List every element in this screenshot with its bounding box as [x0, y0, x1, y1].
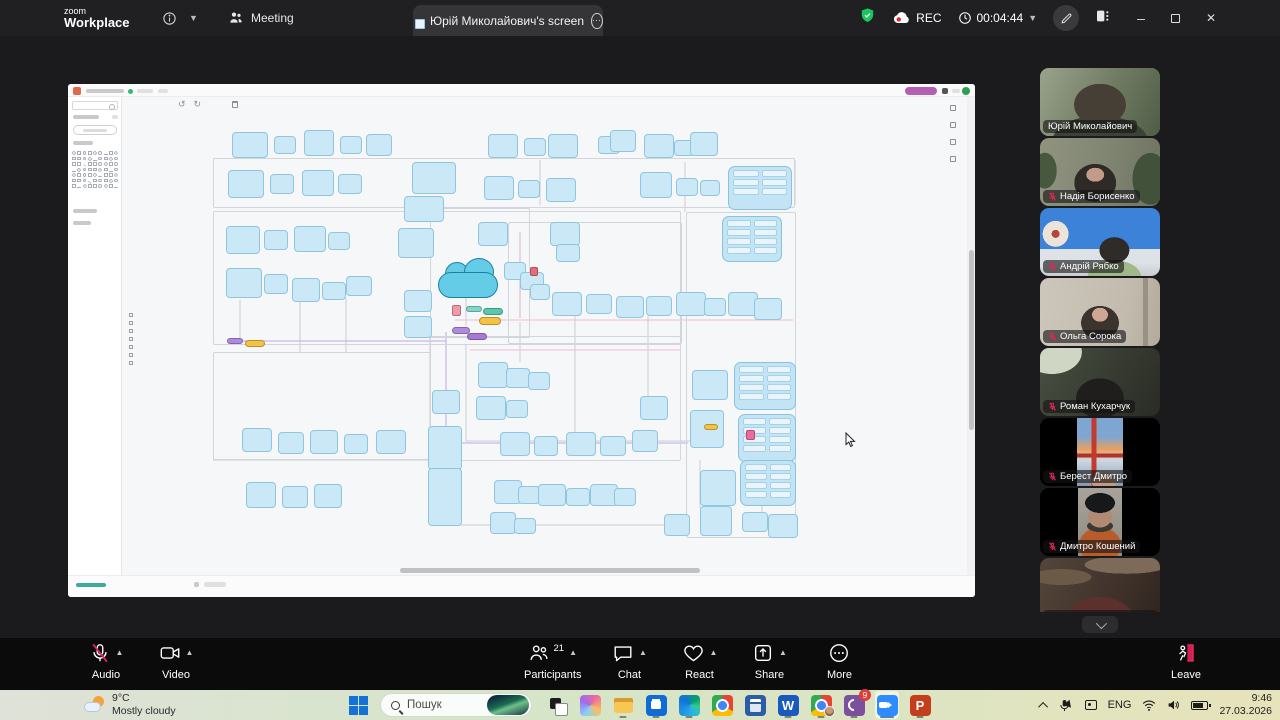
layout-view-button[interactable]	[1095, 8, 1111, 29]
diagram-node[interactable]	[478, 362, 508, 388]
drawio-logo	[73, 87, 81, 95]
react-button[interactable]: ▲React	[677, 642, 721, 681]
drawio-footer-link[interactable]	[76, 583, 106, 587]
taskbar-time: 9:46	[1219, 692, 1272, 705]
diagram-node[interactable]	[412, 162, 456, 194]
weather-desc: Mostly cloudy	[112, 705, 176, 718]
close-button[interactable]: ✕	[1206, 11, 1216, 25]
diagram-node[interactable]	[692, 370, 728, 400]
saved-status-dot	[128, 89, 133, 94]
diagram-accent-shape[interactable]	[530, 267, 538, 276]
profile-avatar	[824, 706, 835, 717]
diagram-node[interactable]	[556, 244, 580, 262]
diagram-node[interactable]	[304, 130, 334, 156]
diagram-node[interactable]	[566, 488, 590, 506]
participant-name-label: Volodymyr Tolmachov	[1043, 610, 1157, 612]
diagram-node[interactable]	[600, 436, 626, 456]
drawio-scratchpad[interactable]	[73, 125, 117, 135]
diagram-node[interactable]	[274, 136, 296, 154]
diagram-node[interactable]	[530, 284, 550, 300]
diagram-node[interactable]	[614, 488, 636, 506]
windows-taskbar: 9°C Mostly cloudy Пошук W9P ENG	[0, 690, 1280, 720]
chevron-down-icon[interactable]: ▼	[182, 6, 206, 30]
muted-mic-icon	[1048, 262, 1057, 271]
diagram-node[interactable]	[500, 432, 530, 456]
diagram-node[interactable]	[228, 170, 264, 198]
mic-in-use-icon[interactable]	[1059, 698, 1074, 712]
diagram-node[interactable]	[646, 296, 672, 316]
taskbar-app-task-view[interactable]	[545, 691, 569, 719]
diagram-node[interactable]	[270, 174, 294, 194]
diagram-node[interactable]	[398, 228, 434, 258]
tab-shared-screen-title: Юрій Миколайович's screen	[430, 14, 584, 28]
weather-temp: 9°C	[112, 692, 176, 705]
diagram-node[interactable]	[518, 180, 540, 198]
zoom-workplace-logo: zoom Workplace	[64, 7, 130, 29]
diagram-node[interactable]	[226, 226, 260, 254]
diagram-node[interactable]	[478, 222, 508, 246]
diagram-node[interactable]	[506, 368, 530, 388]
restore-button[interactable]	[1171, 14, 1180, 23]
video-options-caret[interactable]: ▲	[186, 648, 194, 657]
diagram-node[interactable]	[302, 170, 334, 196]
diagram-node[interactable]	[264, 230, 288, 250]
participant-name-label: Роман Кухарчук	[1043, 400, 1135, 413]
diagram-node[interactable]	[476, 396, 506, 420]
diagram-node[interactable]	[328, 232, 350, 250]
taskbar-app-copilot[interactable]	[578, 691, 602, 719]
diagram-accent-shape[interactable]	[704, 424, 718, 430]
diagram-node[interactable]	[528, 372, 550, 390]
annotate-button[interactable]	[1053, 5, 1079, 31]
participant-name-label: Надія Борисенко	[1043, 190, 1140, 203]
diagram-node[interactable]	[548, 134, 578, 158]
diagram-node[interactable]	[518, 486, 540, 504]
microsoft-store-icon	[646, 695, 667, 716]
diagram-node[interactable]	[586, 294, 612, 314]
diagram-node[interactable]	[506, 400, 528, 418]
participant-name-label: Берест Дмитро	[1043, 470, 1132, 483]
diagram-node[interactable]	[246, 482, 276, 508]
chrome-profile-icon	[811, 695, 832, 716]
drawio-canvas[interactable]: ↺↻	[122, 97, 975, 575]
notification-badge: 9	[859, 689, 871, 701]
taskbar-app-microsoft-store[interactable]	[644, 691, 668, 719]
diagram-accent-shape[interactable]	[746, 430, 755, 440]
diagram-node[interactable]	[610, 130, 636, 152]
participants-button[interactable]: 21▲Participants	[524, 642, 581, 681]
info-icon[interactable]	[158, 6, 182, 30]
diagram-accent-shape[interactable]	[452, 305, 461, 316]
chat-button[interactable]: ▲Chat	[607, 642, 651, 681]
diagram-node[interactable]	[432, 390, 460, 414]
audio-button[interactable]: ▲Audio	[84, 642, 128, 681]
diagram-container-node[interactable]	[734, 362, 796, 410]
edge-icon	[679, 695, 700, 716]
leave-button[interactable]: Leave	[1164, 642, 1208, 681]
participant-name-label: Дмитро Кошений	[1043, 540, 1140, 553]
clock-icon	[958, 11, 972, 25]
diagram-node[interactable]	[742, 512, 768, 532]
recording-indicator[interactable]: REC	[892, 11, 941, 25]
muted-mic-icon	[1048, 472, 1057, 481]
taskbar-app-chrome[interactable]	[710, 691, 734, 719]
drawio-header-bar	[68, 84, 975, 97]
diagram-node[interactable]	[754, 298, 782, 320]
diagram-node[interactable]	[664, 514, 690, 536]
diagram-node[interactable]	[340, 136, 362, 154]
participant-tile[interactable]: Юрій Миколайович	[1040, 68, 1160, 136]
diagram-node[interactable]	[322, 282, 346, 300]
share-button[interactable]: ▲Share	[747, 642, 791, 681]
diagram-container-node[interactable]	[740, 460, 796, 506]
taskbar-search[interactable]: Пошук	[380, 693, 532, 717]
diagram-node[interactable]	[294, 226, 326, 252]
start-button[interactable]	[348, 695, 369, 716]
zoom-meeting-window: zoom Workplace ▼ Meeting Юрій Миколайови…	[0, 0, 1280, 720]
diagram-accent-shape[interactable]	[227, 338, 243, 344]
participant-name-label: Юрій Миколайович	[1043, 120, 1137, 133]
participants-video-rail: Юрій МиколайовичНадія БорисенкоАндрій Ря…	[1040, 68, 1160, 612]
tab-meeting-label: Meeting	[251, 11, 294, 25]
meeting-timer[interactable]: 00:04:44 ▼	[958, 11, 1038, 25]
taskbar-app-file-explorer[interactable]	[611, 691, 635, 719]
diagram-node[interactable]	[632, 430, 658, 452]
canvas-horizontal-scrollbar-thumb[interactable]	[400, 568, 700, 573]
zoom-icon	[877, 695, 898, 716]
muted-mic-icon	[1048, 332, 1057, 341]
muted-mic-icon	[1048, 542, 1057, 551]
participant-tile[interactable]: Ольга Сорока	[1040, 278, 1160, 346]
video-button[interactable]: ▲Video	[154, 642, 198, 681]
shared-screen-drawio-window: ↺↻	[68, 84, 975, 597]
copilot-icon	[580, 695, 601, 716]
taskbar-app-chrome-profile[interactable]	[809, 691, 833, 719]
volume-icon[interactable]	[1167, 699, 1180, 711]
diagram-accent-shape[interactable]	[467, 333, 487, 340]
diagram-node[interactable]	[644, 134, 674, 158]
architecture-diagram	[122, 97, 975, 575]
diagram-node[interactable]	[676, 178, 698, 196]
diagram-node[interactable]	[428, 426, 462, 470]
taskbar-app-calculator[interactable]	[743, 691, 767, 719]
minimize-button[interactable]: –	[1137, 10, 1145, 26]
diagram-node[interactable]	[704, 298, 726, 316]
canvas-vertical-scrollbar-thumb[interactable]	[969, 250, 974, 430]
layout-grid-icon	[1095, 8, 1111, 24]
participant-name-label: Андрій Рябко	[1043, 260, 1124, 273]
wifi-icon[interactable]	[1142, 700, 1156, 711]
diagram-node[interactable]	[232, 132, 268, 158]
muted-mic-icon	[1048, 402, 1057, 411]
taskbar-apps: W9P	[545, 691, 932, 719]
search-daily-image	[487, 695, 529, 715]
language-indicator[interactable]: ENG	[1108, 699, 1132, 711]
powerpoint-icon: P	[910, 695, 931, 716]
diagram-node[interactable]	[404, 316, 432, 338]
react-options-caret[interactable]: ▲	[710, 648, 718, 657]
more-button[interactable]: More	[817, 642, 861, 681]
drawio-share-button[interactable]	[905, 87, 937, 95]
diagram-node[interactable]	[640, 396, 668, 420]
people-icon	[228, 10, 244, 26]
weather-widget[interactable]: 9°C Mostly cloudy	[84, 692, 176, 717]
diagram-node[interactable]	[314, 484, 342, 508]
diagram-node[interactable]	[640, 172, 672, 198]
tab-options-icon[interactable]: ⋯	[591, 13, 603, 29]
diagram-node[interactable]	[226, 268, 262, 298]
diagram-node[interactable]	[690, 132, 718, 156]
diagram-node[interactable]	[534, 436, 558, 456]
audio-options-caret[interactable]: ▲	[116, 648, 124, 657]
diagram-accent-shape[interactable]	[466, 306, 482, 312]
diagram-node[interactable]	[566, 432, 596, 456]
muted-mic-icon	[1048, 192, 1057, 201]
diagram-container-node[interactable]	[728, 166, 792, 210]
diagram-node[interactable]	[700, 506, 732, 536]
share-options-caret[interactable]: ▲	[779, 648, 787, 657]
participant-video	[1040, 558, 1160, 612]
task-view-icon	[547, 695, 568, 716]
diagram-node[interactable]	[404, 196, 444, 222]
search-icon	[391, 701, 400, 710]
cloud-rec-icon	[892, 11, 912, 25]
diagram-node[interactable]	[550, 222, 580, 246]
diagram-node[interactable]	[700, 180, 720, 196]
weather-icon	[84, 696, 106, 714]
participant-tile[interactable]: Дмитро Кошений	[1040, 488, 1160, 556]
diagram-node[interactable]	[346, 276, 372, 296]
participant-name-label: Ольга Сорока	[1043, 330, 1126, 343]
diagram-container-node[interactable]	[722, 216, 782, 262]
participant-tile[interactable]: Андрій Рябко	[1040, 208, 1160, 276]
diagram-node[interactable]	[278, 432, 304, 454]
participants-options-caret[interactable]: ▲	[569, 648, 577, 657]
diagram-accent-shape[interactable]	[479, 317, 501, 325]
diagram-node[interactable]	[338, 174, 362, 194]
participant-tile[interactable]: Роман Кухарчук	[1040, 348, 1160, 416]
battery-icon[interactable]	[1191, 701, 1208, 710]
chrome-icon	[712, 695, 733, 716]
diagram-node[interactable]	[676, 292, 706, 316]
diagram-node[interactable]	[552, 292, 582, 316]
snip-icon[interactable]	[1085, 700, 1097, 710]
taskbar-date: 27.03.2026	[1219, 705, 1272, 718]
diagram-node[interactable]	[428, 468, 462, 526]
drawio-avatar[interactable]	[962, 87, 970, 95]
more-participants-button[interactable]	[1082, 616, 1118, 633]
taskbar-clock[interactable]: 9:46 27.03.2026	[1219, 692, 1272, 718]
diagram-node[interactable]	[366, 134, 392, 156]
diagram-node[interactable]	[538, 484, 566, 506]
diagram-node[interactable]	[310, 430, 338, 454]
diagram-node[interactable]	[264, 274, 288, 294]
tab-meeting[interactable]: Meeting	[228, 0, 294, 36]
diagram-node[interactable]	[616, 296, 644, 318]
drawio-page-tab[interactable]	[204, 582, 226, 587]
taskbar-app-powerpoint[interactable]: P	[908, 691, 932, 719]
participant-tile[interactable]: Берест Дмитро	[1040, 418, 1160, 486]
zoom-title-bar: zoom Workplace ▼ Meeting Юрій Миколайови…	[0, 0, 1280, 36]
pencil-icon	[1060, 12, 1073, 25]
drawio-shape-search-input[interactable]	[72, 101, 118, 110]
drawio-shape-grid[interactable]	[72, 151, 120, 188]
diagram-node[interactable]	[404, 290, 432, 312]
diagram-node[interactable]	[546, 178, 576, 202]
diagram-node[interactable]	[490, 512, 516, 534]
taskbar-app-edge[interactable]	[677, 691, 701, 719]
diagram-node[interactable]	[524, 138, 546, 156]
word-icon: W	[778, 695, 799, 716]
diagram-node[interactable]	[282, 486, 308, 508]
diagram-node[interactable]	[700, 470, 736, 506]
security-shield-icon[interactable]	[859, 7, 876, 29]
diagram-node[interactable]	[484, 176, 514, 200]
diagram-node[interactable]	[376, 430, 406, 454]
calculator-icon	[745, 695, 766, 716]
diagram-accent-shape[interactable]	[245, 340, 265, 347]
tab-shared-screen[interactable]: Юрій Миколайович's screen ⋯	[413, 5, 603, 36]
diagram-node[interactable]	[242, 428, 272, 452]
drawio-shape-palette	[68, 97, 122, 581]
taskbar-app-word[interactable]: W	[776, 691, 800, 719]
file-explorer-icon	[613, 695, 634, 716]
diagram-accent-shape[interactable]	[483, 308, 503, 315]
chat-options-caret[interactable]: ▲	[639, 648, 647, 657]
diagram-node[interactable]	[488, 134, 518, 158]
meeting-control-bar: ▲Audio▲Video 21▲Participants▲Chat▲React▲…	[0, 638, 1280, 690]
diagram-node[interactable]	[514, 518, 536, 534]
diagram-node[interactable]	[292, 278, 320, 302]
system-tray: ENG 9:46 27.03.2026	[1041, 690, 1272, 720]
taskbar-app-zoom[interactable]	[875, 691, 899, 719]
search-placeholder: Пошук	[407, 699, 487, 711]
tray-expand-icon[interactable]	[1041, 702, 1048, 709]
taskbar-app-viber[interactable]: 9	[842, 691, 866, 719]
diagram-node[interactable]	[344, 434, 368, 454]
participant-tile[interactable]: Надія Борисенко	[1040, 138, 1160, 206]
diagram-node[interactable]	[768, 514, 798, 538]
participant-tile[interactable]: Volodymyr Tolmachov	[1040, 558, 1160, 612]
mouse-cursor	[845, 432, 857, 448]
drawio-footer	[68, 575, 975, 597]
